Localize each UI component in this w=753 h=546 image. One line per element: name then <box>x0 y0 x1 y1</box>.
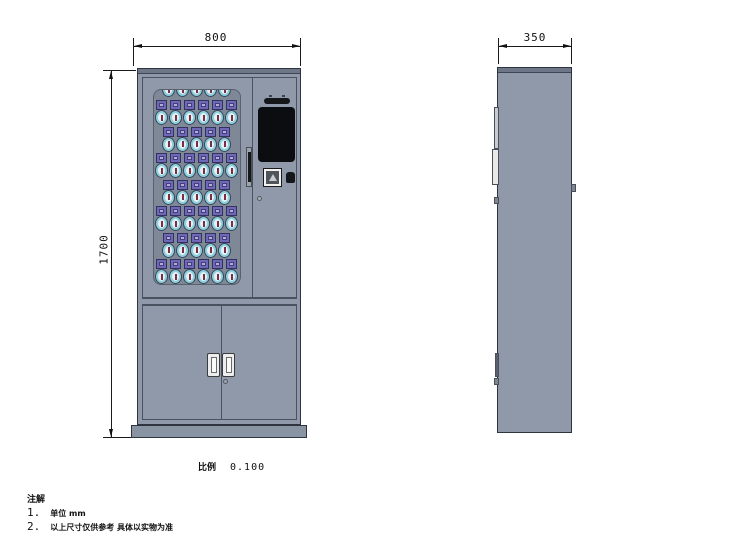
key-fob-icon <box>191 89 202 96</box>
key-slot-icon <box>156 100 167 110</box>
key-fob-icon <box>205 244 216 257</box>
key-fob-slit <box>161 274 163 280</box>
key-fob-slit <box>210 194 212 200</box>
key-slot-icon <box>163 127 174 137</box>
key-unit <box>170 153 181 177</box>
note-text: 以上尺寸仅供参考 具体以实物为准 <box>50 522 173 533</box>
key-slot-inner <box>194 130 199 134</box>
key-slot-icon <box>198 206 209 216</box>
key-slot-inner <box>229 103 234 107</box>
key-unit <box>191 180 202 204</box>
key-unit <box>177 180 188 204</box>
note-number: 1. <box>27 506 40 519</box>
key-fob-icon <box>219 89 230 96</box>
door-handle <box>246 147 252 187</box>
key-fob-slit <box>224 194 226 200</box>
key-unit <box>219 89 230 96</box>
key-fob-slit <box>189 274 191 280</box>
key-slot-icon <box>156 259 167 269</box>
key-slot-inner <box>229 156 234 160</box>
key-fob-slit <box>161 168 163 174</box>
key-slot-inner <box>180 183 185 187</box>
key-slot-icon <box>184 206 195 216</box>
dim-350-arrow-left <box>499 44 507 48</box>
key-slot-icon <box>212 100 223 110</box>
side-view-cabinet <box>497 67 572 433</box>
key-fob-icon <box>205 89 216 96</box>
key-slot-inner <box>201 156 206 160</box>
key-slot-icon <box>170 259 181 269</box>
upper-section <box>142 77 297 298</box>
key-fob-icon <box>163 89 174 96</box>
key-slot-icon <box>163 180 174 190</box>
key-slot-icon <box>170 100 181 110</box>
emergency-keyhole-icon <box>286 172 295 183</box>
dim-1700-arrow-bottom <box>109 429 113 437</box>
key-fob-icon <box>156 270 167 283</box>
key-slot-inner <box>166 183 171 187</box>
key-unit <box>198 206 209 230</box>
key-fob-slit <box>182 141 184 147</box>
key-fob-icon <box>184 164 195 177</box>
key-fob-slit <box>217 168 219 174</box>
key-slot-inner <box>159 262 164 266</box>
key-fob-slit <box>231 274 233 280</box>
key-fob-icon <box>170 111 181 124</box>
key-fob-icon <box>163 244 174 257</box>
key-fob-slit <box>210 247 212 253</box>
key-fob-icon <box>219 191 230 204</box>
key-slot-inner <box>208 130 213 134</box>
key-slot-inner <box>215 262 220 266</box>
key-slot-icon <box>198 153 209 163</box>
key-fob-icon <box>226 164 237 177</box>
key-fob-slit <box>224 89 226 93</box>
key-slot-icon <box>170 153 181 163</box>
drawing-canvas: 800 1700 350 <box>0 0 753 546</box>
dim-800-label: 800 <box>196 31 236 44</box>
front-cabinet-top-strip <box>138 69 300 74</box>
key-unit <box>205 127 216 151</box>
key-row <box>154 153 240 177</box>
key-unit <box>170 206 181 230</box>
key-unit <box>198 259 209 283</box>
key-fob-icon <box>198 217 209 230</box>
key-fob-slit <box>231 115 233 121</box>
key-fob-icon <box>177 244 188 257</box>
side-bracket-icon <box>492 149 499 185</box>
key-unit <box>163 233 174 257</box>
key-fob-slit <box>210 141 212 147</box>
key-fob-icon <box>170 270 181 283</box>
key-slot-icon <box>184 100 195 110</box>
key-fob-icon <box>156 164 167 177</box>
key-row <box>154 127 240 151</box>
side-rear-nub-icon <box>571 184 576 192</box>
note-number: 2. <box>27 520 40 533</box>
note-item: 2. 以上尺寸仅供参考 具体以实物为准 <box>27 520 173 533</box>
key-fob-slit <box>203 274 205 280</box>
key-fob-slit <box>182 194 184 200</box>
door-handle-bar <box>248 152 251 182</box>
key-slot-inner <box>173 209 178 213</box>
side-cabinet-top-strip <box>498 68 571 73</box>
key-unit <box>163 180 174 204</box>
key-fob-slit <box>231 221 233 227</box>
key-slot-icon <box>212 206 223 216</box>
key-slot-inner <box>222 236 227 240</box>
dim-800-arrow-right <box>292 44 300 48</box>
key-row <box>154 206 240 230</box>
key-slot-inner <box>159 156 164 160</box>
key-unit <box>177 127 188 151</box>
key-slot-icon <box>205 180 216 190</box>
touchscreen <box>258 107 295 162</box>
handle-slot <box>226 357 232 373</box>
key-row <box>154 89 240 96</box>
key-unit <box>212 153 223 177</box>
key-fob-icon <box>177 89 188 96</box>
key-unit <box>156 153 167 177</box>
dim-1700-extension-top <box>103 70 136 71</box>
key-grid <box>154 89 240 283</box>
key-fob-icon <box>212 270 223 283</box>
key-fob-icon <box>177 138 188 151</box>
key-unit <box>163 127 174 151</box>
key-unit <box>184 153 195 177</box>
front-view-cabinet <box>137 68 301 425</box>
dim-800-extension-left <box>133 38 134 66</box>
key-unit <box>226 259 237 283</box>
key-window <box>153 89 241 285</box>
key-fob-slit <box>217 115 219 121</box>
key-slot-icon <box>205 127 216 137</box>
key-slot-inner <box>173 156 178 160</box>
key-slot-icon <box>198 100 209 110</box>
key-fob-icon <box>156 217 167 230</box>
key-fob-icon <box>198 164 209 177</box>
key-fob-slit <box>168 141 170 147</box>
side-hinge-icon <box>494 107 499 149</box>
key-fob-icon <box>226 111 237 124</box>
key-fob-slit <box>203 115 205 121</box>
key-fob-icon <box>212 217 223 230</box>
handle-slot <box>211 357 217 373</box>
key-fob-icon <box>226 270 237 283</box>
key-unit <box>156 100 167 124</box>
key-slot-inner <box>194 236 199 240</box>
scale-label: 比例 <box>198 460 216 473</box>
camera-bar-icon <box>264 98 290 104</box>
key-slot-inner <box>222 130 227 134</box>
key-unit <box>219 180 230 204</box>
key-fob-slit <box>217 221 219 227</box>
key-fob-icon <box>212 164 223 177</box>
key-slot-inner <box>187 262 192 266</box>
key-slot-inner <box>173 103 178 107</box>
key-fob-icon <box>177 191 188 204</box>
scale-value: 0.100 <box>230 462 265 473</box>
key-fob-slit <box>182 89 184 93</box>
dim-800-arrow-left <box>134 44 142 48</box>
key-fob-icon <box>205 138 216 151</box>
key-slot-icon <box>156 206 167 216</box>
dim-350-line <box>498 46 572 47</box>
key-unit <box>184 100 195 124</box>
key-row <box>154 259 240 283</box>
camera-dot-icon <box>282 95 285 97</box>
dim-350-label: 350 <box>514 31 556 44</box>
key-unit <box>184 259 195 283</box>
side-latch-icon <box>494 197 499 204</box>
key-fob-slit <box>175 168 177 174</box>
key-fob-slit <box>224 247 226 253</box>
key-fob-slit <box>203 168 205 174</box>
key-fob-icon <box>184 217 195 230</box>
key-fob-slit <box>196 247 198 253</box>
key-slot-inner <box>215 209 220 213</box>
key-slot-inner <box>215 156 220 160</box>
key-unit <box>163 89 174 96</box>
key-unit <box>212 259 223 283</box>
key-slot-inner <box>180 236 185 240</box>
dim-1700-arrow-top <box>109 71 113 79</box>
key-fob-slit <box>161 115 163 121</box>
key-slot-inner <box>222 183 227 187</box>
key-slot-icon <box>226 206 237 216</box>
key-fob-icon <box>184 270 195 283</box>
divider-band <box>142 298 297 305</box>
key-slot-icon <box>212 153 223 163</box>
key-fob-icon <box>156 111 167 124</box>
key-unit <box>191 89 202 96</box>
key-slot-inner <box>187 156 192 160</box>
key-slot-inner <box>201 262 206 266</box>
key-slot-inner <box>208 236 213 240</box>
key-slot-inner <box>173 262 178 266</box>
cabinet-plinth <box>131 425 307 438</box>
key-fob-icon <box>198 270 209 283</box>
key-unit <box>212 100 223 124</box>
key-fob-icon <box>226 217 237 230</box>
key-unit <box>156 259 167 283</box>
key-slot-inner <box>208 183 213 187</box>
key-slot-icon <box>212 259 223 269</box>
key-fob-slit <box>203 221 205 227</box>
key-slot-icon <box>163 233 174 243</box>
note-text: 单位 mm <box>50 508 85 519</box>
dim-350-arrow-right <box>563 44 571 48</box>
key-unit <box>177 233 188 257</box>
key-unit <box>212 206 223 230</box>
scale-row: 比例 0.100 <box>198 460 265 473</box>
key-fob-slit <box>224 141 226 147</box>
key-slot-icon <box>156 153 167 163</box>
key-fob-slit <box>217 274 219 280</box>
key-fob-slit <box>210 89 212 93</box>
key-fob-slit <box>175 221 177 227</box>
key-unit <box>184 206 195 230</box>
key-slot-inner <box>229 262 234 266</box>
key-cabinet-door <box>143 78 253 297</box>
key-fob-icon <box>184 111 195 124</box>
camera-dot-icon <box>269 95 272 97</box>
key-slot-inner <box>201 103 206 107</box>
key-fob-slit <box>168 247 170 253</box>
key-unit <box>205 233 216 257</box>
key-fob-slit <box>182 247 184 253</box>
key-fob-slit <box>196 141 198 147</box>
side-lower-latch-icon <box>494 378 499 385</box>
key-unit <box>226 153 237 177</box>
key-fob-icon <box>205 191 216 204</box>
key-unit <box>198 100 209 124</box>
key-fob-icon <box>170 164 181 177</box>
key-unit <box>177 89 188 96</box>
key-unit <box>156 206 167 230</box>
key-slot-inner <box>201 209 206 213</box>
key-slot-icon <box>226 153 237 163</box>
key-unit <box>226 100 237 124</box>
key-slot-icon <box>191 180 202 190</box>
key-slot-inner <box>229 209 234 213</box>
key-fob-slit <box>196 89 198 93</box>
key-fob-icon <box>198 111 209 124</box>
key-slot-inner <box>159 209 164 213</box>
scanner-window <box>266 171 279 184</box>
key-fob-slit <box>196 194 198 200</box>
key-fob-slit <box>175 274 177 280</box>
key-slot-icon <box>177 233 188 243</box>
dim-1700-line <box>111 70 112 438</box>
key-slot-inner <box>187 209 192 213</box>
dim-800-extension-right <box>300 38 301 66</box>
key-slot-icon <box>205 233 216 243</box>
key-slot-inner <box>166 236 171 240</box>
qr-scanner <box>263 168 282 187</box>
key-fob-icon <box>170 217 181 230</box>
key-fob-icon <box>191 138 202 151</box>
notes-title: 注解 <box>27 492 173 505</box>
dim-800-line <box>133 46 301 47</box>
key-slot-icon <box>184 153 195 163</box>
key-slot-icon <box>191 233 202 243</box>
key-fob-slit <box>189 115 191 121</box>
lower-right-door-handle <box>222 353 235 377</box>
key-unit <box>191 127 202 151</box>
key-slot-icon <box>177 180 188 190</box>
key-slot-icon <box>191 127 202 137</box>
key-fob-slit <box>168 89 170 93</box>
key-unit <box>198 153 209 177</box>
key-fob-icon <box>191 244 202 257</box>
key-fob-slit <box>189 221 191 227</box>
key-slot-icon <box>177 127 188 137</box>
key-slot-icon <box>170 206 181 216</box>
key-slot-inner <box>180 130 185 134</box>
key-fob-slit <box>231 168 233 174</box>
key-unit <box>205 180 216 204</box>
key-fob-slit <box>175 115 177 121</box>
key-unit <box>219 127 230 151</box>
key-slot-icon <box>219 127 230 137</box>
key-slot-icon <box>219 233 230 243</box>
key-slot-inner <box>166 130 171 134</box>
control-panel <box>253 78 298 297</box>
dim-350-extension-right <box>571 38 572 64</box>
panel-lock-icon <box>257 196 262 201</box>
key-fob-icon <box>219 138 230 151</box>
scanner-glyph-icon <box>269 174 277 181</box>
note-item: 1. 单位 mm <box>27 506 173 519</box>
key-fob-slit <box>189 168 191 174</box>
key-row <box>154 100 240 124</box>
lower-door-lock-icon <box>223 379 228 384</box>
dim-1700-label: 1700 <box>98 230 111 270</box>
key-fob-slit <box>168 194 170 200</box>
key-row <box>154 233 240 257</box>
key-slot-icon <box>198 259 209 269</box>
side-lower-hinge-icon <box>495 353 499 377</box>
key-slot-inner <box>194 183 199 187</box>
key-unit <box>205 89 216 96</box>
key-slot-icon <box>226 259 237 269</box>
key-unit <box>170 259 181 283</box>
key-slot-icon <box>219 180 230 190</box>
key-unit <box>226 206 237 230</box>
key-fob-icon <box>212 111 223 124</box>
key-fob-icon <box>163 138 174 151</box>
lower-left-door-handle <box>207 353 220 377</box>
key-unit <box>219 233 230 257</box>
key-slot-inner <box>159 103 164 107</box>
key-fob-icon <box>191 191 202 204</box>
key-fob-slit <box>161 221 163 227</box>
key-slot-icon <box>184 259 195 269</box>
key-fob-icon <box>219 244 230 257</box>
lower-doors-section <box>142 305 297 420</box>
key-unit <box>191 233 202 257</box>
dim-350-extension-left <box>498 38 499 64</box>
key-row <box>154 180 240 204</box>
key-unit <box>170 100 181 124</box>
key-fob-icon <box>163 191 174 204</box>
notes-block: 注解 1. 单位 mm 2. 以上尺寸仅供参考 具体以实物为准 <box>27 492 173 533</box>
key-slot-inner <box>215 103 220 107</box>
key-slot-icon <box>226 100 237 110</box>
key-slot-inner <box>187 103 192 107</box>
